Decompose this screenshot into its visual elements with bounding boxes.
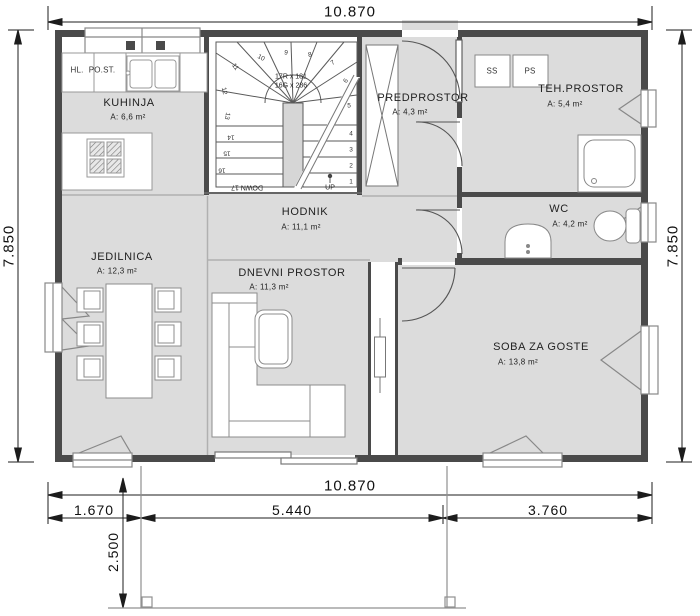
washer-label: SS: [486, 67, 497, 76]
dim-bottom-total: 10.870: [324, 478, 376, 495]
room-area-hodnik: A: 11,1 m²: [281, 223, 320, 232]
stair-up-label: UP: [325, 185, 335, 192]
room-area-dnevni-prostor: A: 11,3 m²: [249, 283, 288, 292]
room-area-teh-prostor: A: 5,4 m²: [547, 100, 582, 109]
step-9: 9: [284, 49, 289, 56]
room-label-jedilnica: JEDILNICA: [91, 251, 153, 263]
step-15: 15: [223, 150, 230, 157]
shower: [578, 135, 641, 192]
staircase: [209, 37, 360, 192]
stair-down-label: DOWN 17: [231, 184, 263, 191]
room-area-jedilnica: A: 12,3 m²: [97, 267, 137, 276]
room-label-hodnik: HODNIK: [282, 206, 328, 218]
room-area-soba-za-goste: A: 13,8 m²: [498, 358, 538, 367]
stair-riser-spec: 17R x 181: [275, 74, 307, 81]
dim-terrace-depth: 2.500: [105, 532, 121, 572]
step-3: 3: [349, 147, 353, 154]
step-1: 1: [349, 179, 353, 186]
room-area-predprostor: A: 4,3 m²: [392, 108, 427, 117]
step-13: 13: [223, 112, 231, 121]
dim-left: 7.850: [1, 225, 18, 268]
room-label-dnevni-prostor: DNEVNI PROSTOR: [238, 267, 345, 279]
up-start-dot: [328, 174, 332, 178]
dryer-label: PS: [524, 67, 535, 76]
dim-bottom-seg1: 1.670: [74, 502, 114, 518]
dim-bottom-seg3: 3.760: [528, 502, 568, 518]
room-area-wc: A: 4,2 m²: [552, 220, 587, 229]
dishwasher-label: PO.ST.: [89, 66, 116, 75]
room-label-kuhinja: KUHINJA: [103, 97, 154, 109]
dim-right: 7.850: [665, 225, 682, 268]
kitchen-sink: [126, 56, 179, 91]
room-label-wc: WC: [549, 203, 569, 215]
terrace-outline: [108, 466, 466, 608]
room-label-soba-za-goste: SOBA ZA GOSTE: [493, 341, 589, 353]
fridge-label: HL.: [70, 66, 83, 75]
tv: [375, 318, 386, 393]
step-2: 2: [349, 163, 353, 170]
stair-going-spec: 16G x 286: [275, 83, 307, 90]
floor-plan: 10.870 7.850 7.850 10.870 1.670 5.440 3.…: [0, 0, 700, 616]
cooktop: [87, 139, 124, 177]
step-12: 12: [220, 87, 228, 96]
step-4: 4: [349, 131, 353, 138]
dim-top: 10.870: [324, 4, 376, 21]
toilet: [594, 209, 640, 243]
room-area-kuhinja: A: 6,6 m²: [110, 113, 145, 122]
coffee-table: [255, 310, 292, 368]
room-label-teh-prostor: TEH.PROSTOR: [538, 83, 624, 95]
step-8: 8: [307, 51, 312, 59]
step-14: 14: [227, 134, 234, 141]
dim-bottom-seg2: 5.440: [272, 502, 312, 518]
wc-sink: [505, 224, 551, 258]
step-5: 5: [347, 103, 351, 110]
step-16: 16: [218, 167, 225, 174]
room-label-predprostor: PREDPROSTOR: [377, 92, 468, 104]
